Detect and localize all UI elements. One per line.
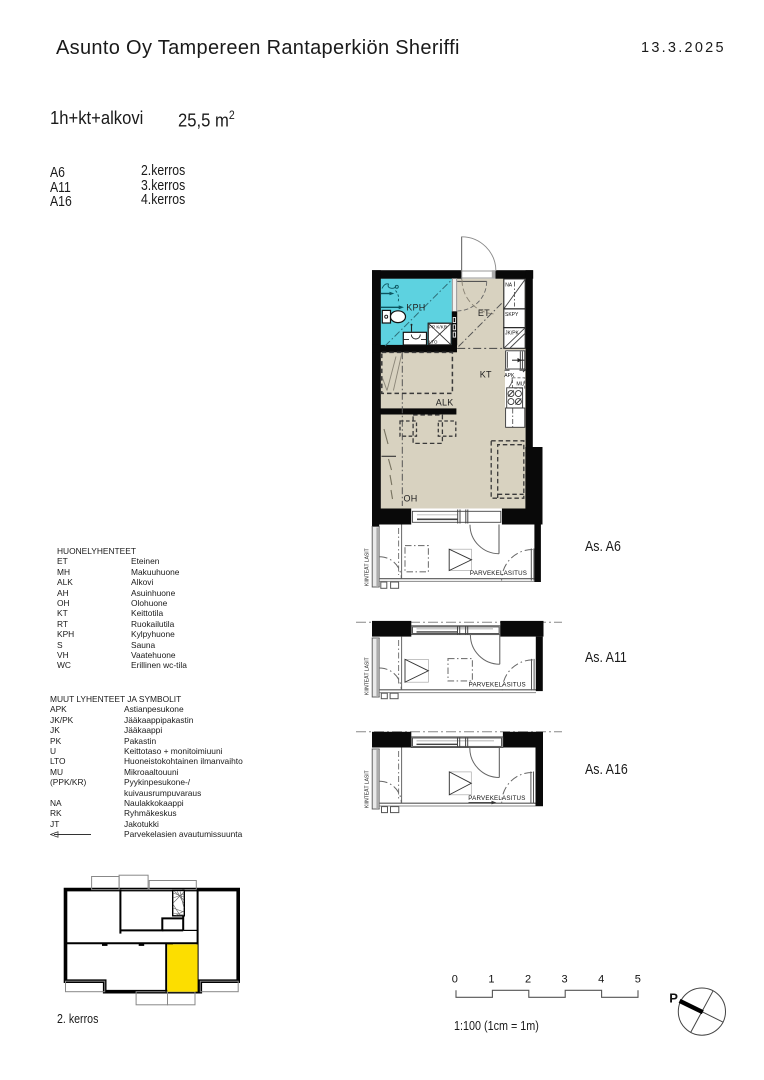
svg-text:PARVEKELASITUS: PARVEKELASITUS xyxy=(468,795,525,802)
svg-text:JK/PK: JK/PK xyxy=(505,331,520,337)
svg-text:PARVEKELASITUS: PARVEKELASITUS xyxy=(470,570,527,577)
svg-text:P: P xyxy=(669,990,678,1005)
svg-text:NA: NA xyxy=(505,283,513,289)
svg-text:3: 3 xyxy=(562,974,568,986)
svg-text:PP K/KR: PP K/KR xyxy=(429,324,448,329)
svg-text:KIINTEÄT LASIT: KIINTEÄT LASIT xyxy=(364,770,371,808)
svg-text:MU: MU xyxy=(516,381,524,387)
svg-text:1: 1 xyxy=(488,974,494,986)
svg-text:LTO: LTO xyxy=(429,340,438,345)
svg-text:0: 0 xyxy=(452,974,458,986)
svg-text:KIINTEÄT LASIT: KIINTEÄT LASIT xyxy=(364,657,371,695)
svg-text:ET: ET xyxy=(478,308,490,318)
svg-text:ALK: ALK xyxy=(436,398,454,408)
svg-text:APK: APK xyxy=(504,373,515,379)
svg-text:KT: KT xyxy=(480,369,492,379)
svg-text:KIINTEÄT LASIT: KIINTEÄT LASIT xyxy=(364,548,371,586)
svg-text:4: 4 xyxy=(598,974,604,986)
svg-text:KPH: KPH xyxy=(406,302,425,312)
svg-text:OH: OH xyxy=(404,494,418,504)
svg-text:5: 5 xyxy=(635,974,641,986)
svg-text:2: 2 xyxy=(525,974,531,986)
svg-text:PARVEKELASITUS: PARVEKELASITUS xyxy=(469,682,526,689)
svg-text:SKPY: SKPY xyxy=(505,312,519,318)
